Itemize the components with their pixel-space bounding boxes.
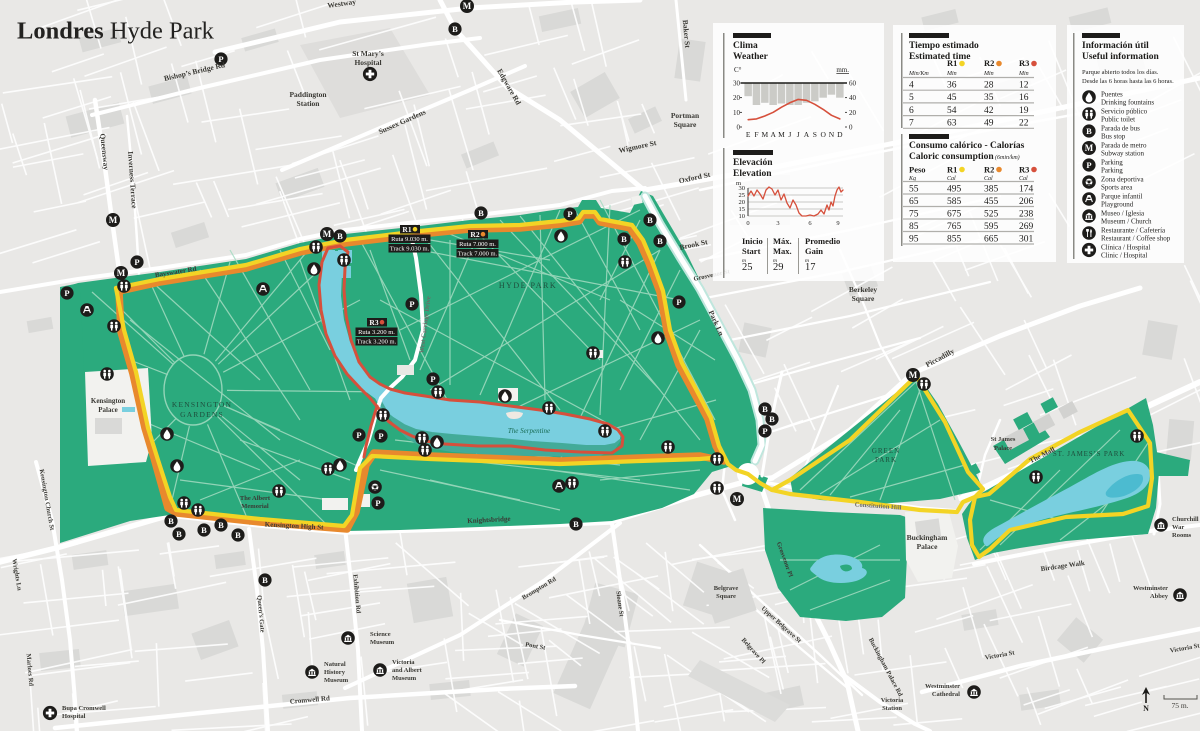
svg-text:Clínica / Hospital: Clínica / Hospital [1101, 244, 1150, 252]
svg-text:Peso: Peso [909, 165, 926, 175]
svg-text:History: History [324, 669, 346, 676]
svg-text:Start: Start [742, 246, 761, 256]
svg-text:63: 63 [947, 119, 957, 129]
svg-text:N: N [1143, 704, 1149, 713]
svg-text:Promedio: Promedio [805, 236, 840, 246]
svg-text:595: 595 [984, 222, 999, 232]
svg-text:269: 269 [1019, 222, 1034, 232]
svg-text:R3: R3 [369, 318, 378, 327]
svg-text:Natural: Natural [324, 661, 346, 668]
svg-text:Track 7.000 m.: Track 7.000 m. [458, 251, 498, 258]
svg-text:Station: Station [882, 705, 902, 712]
svg-text:F: F [754, 130, 758, 139]
svg-text:Parque abierto todos los días.: Parque abierto todos los días. [1082, 69, 1159, 76]
svg-text:65: 65 [909, 197, 919, 207]
svg-text:R2: R2 [470, 230, 479, 239]
svg-text:17: 17 [805, 262, 816, 273]
svg-text:Min: Min [1018, 71, 1029, 77]
svg-text:Hospital: Hospital [354, 58, 381, 67]
svg-text:Berkeley: Berkeley [849, 285, 878, 294]
svg-text:Belgrave: Belgrave [714, 585, 739, 592]
svg-text:25: 25 [742, 262, 753, 273]
svg-text:36: 36 [947, 81, 957, 91]
svg-text:Clinic / Hospital: Clinic / Hospital [1101, 252, 1147, 260]
svg-text:C°: C° [734, 66, 742, 74]
svg-text:22: 22 [1019, 119, 1029, 129]
svg-text:Victoria: Victoria [881, 697, 904, 704]
svg-text:Tiempo estimado: Tiempo estimado [909, 41, 979, 51]
svg-text:10: 10 [733, 109, 741, 117]
svg-text:Westminster: Westminster [925, 683, 960, 690]
svg-text:R3: R3 [1019, 58, 1029, 68]
svg-text:Bupa Cromwell: Bupa Cromwell [62, 705, 106, 712]
svg-text:0: 0 [849, 124, 853, 132]
svg-text:A: A [770, 130, 776, 139]
svg-text:525: 525 [984, 210, 999, 220]
svg-text:Ruta 3.200 m.: Ruta 3.200 m. [358, 329, 395, 336]
svg-text:3: 3 [776, 220, 779, 227]
svg-text:Puentes: Puentes [1101, 91, 1123, 99]
svg-text:Caloric consumption: Caloric consumption [909, 152, 994, 162]
svg-text:9: 9 [836, 220, 839, 227]
svg-text:12: 12 [1019, 81, 1029, 91]
svg-text:Londres Hyde Park: Londres Hyde Park [17, 18, 215, 45]
svg-text:Rooms: Rooms [1172, 532, 1192, 539]
svg-text:The Serpentine: The Serpentine [508, 427, 550, 435]
svg-text:6: 6 [909, 106, 914, 116]
svg-text:40: 40 [849, 94, 857, 102]
svg-text:N: N [829, 130, 835, 139]
svg-text:E: E [746, 130, 751, 139]
svg-text:25: 25 [739, 192, 746, 199]
svg-text:16: 16 [1019, 93, 1029, 103]
svg-text:Victoria: Victoria [392, 659, 415, 666]
svg-text:Square: Square [716, 593, 736, 600]
svg-text:35: 35 [984, 93, 994, 103]
svg-text:GARDENS: GARDENS [180, 410, 224, 419]
svg-text:Kensington: Kensington [91, 397, 125, 405]
svg-text:Useful information: Useful information [1082, 52, 1160, 62]
svg-text:Square: Square [852, 294, 875, 303]
svg-text:GREEN: GREEN [872, 447, 900, 455]
svg-text:765: 765 [947, 222, 962, 232]
svg-text:Parking: Parking [1101, 159, 1123, 167]
svg-text:J: J [788, 130, 791, 139]
svg-text:Track 9.030 m.: Track 9.030 m. [390, 246, 430, 253]
svg-text:Máx.: Máx. [773, 236, 792, 246]
svg-text:60: 60 [849, 80, 857, 88]
svg-text:The Albert: The Albert [240, 495, 271, 502]
svg-text:5: 5 [909, 93, 914, 103]
svg-text:and Albert: and Albert [392, 667, 423, 674]
svg-text:Abbey: Abbey [1150, 593, 1169, 600]
svg-text:Portman: Portman [671, 111, 700, 120]
svg-text:Estimated time: Estimated time [909, 52, 970, 62]
svg-text:Restaurante / Cafetería: Restaurante / Cafetería [1101, 227, 1166, 235]
svg-text:St James: St James [991, 436, 1016, 443]
svg-text:30: 30 [739, 185, 746, 192]
svg-text:Clima: Clima [733, 41, 758, 51]
svg-text:HYDE PARK: HYDE PARK [499, 281, 557, 290]
svg-text:R2: R2 [984, 165, 994, 175]
svg-text:Parque infantil: Parque infantil [1101, 193, 1142, 201]
svg-text:Restaurant / Coffee shop: Restaurant / Coffee shop [1101, 235, 1171, 243]
svg-text:206: 206 [1019, 197, 1034, 207]
svg-text:War: War [1172, 524, 1184, 531]
svg-text:Palace: Palace [917, 542, 938, 551]
svg-text:15: 15 [739, 206, 746, 213]
svg-text:Parada de metro: Parada de metro [1101, 142, 1147, 150]
svg-text:M: M [761, 130, 768, 139]
svg-text:95: 95 [909, 235, 919, 245]
svg-text:385: 385 [984, 185, 999, 195]
svg-text:Square: Square [674, 120, 697, 129]
svg-text:45: 45 [947, 93, 957, 103]
svg-text:Min/Km: Min/Km [908, 71, 929, 77]
svg-text:0: 0 [746, 220, 749, 227]
svg-text:Weather: Weather [733, 52, 769, 62]
svg-text:D: D [837, 130, 843, 139]
svg-text:Public toilet: Public toilet [1101, 116, 1135, 124]
svg-text:665: 665 [984, 235, 999, 245]
svg-text:R2: R2 [984, 58, 994, 68]
svg-text:42: 42 [984, 106, 994, 116]
svg-text:R1: R1 [947, 58, 957, 68]
svg-text:R3: R3 [1019, 165, 1029, 175]
svg-text:19: 19 [1019, 106, 1029, 116]
svg-text:(6min/km): (6min/km) [995, 154, 1020, 161]
svg-text:Min: Min [946, 71, 957, 77]
svg-text:Zona deportiva: Zona deportiva [1101, 176, 1144, 184]
svg-text:49: 49 [984, 119, 994, 129]
svg-text:675: 675 [947, 210, 962, 220]
svg-text:Ruta 7.000 m.: Ruta 7.000 m. [459, 241, 496, 248]
svg-text:30: 30 [733, 80, 741, 88]
svg-text:Paddington: Paddington [289, 90, 327, 99]
svg-text:mm.: mm. [836, 66, 849, 74]
svg-text:Station: Station [297, 99, 321, 108]
svg-text:KENSINGTON: KENSINGTON [172, 400, 232, 409]
svg-text:Sports area: Sports area [1101, 184, 1133, 192]
svg-text:Museum: Museum [324, 677, 349, 684]
svg-text:174: 174 [1019, 185, 1034, 195]
svg-text:Palace: Palace [98, 406, 117, 414]
svg-text:Memorial: Memorial [241, 503, 269, 510]
svg-text:S: S [813, 130, 817, 139]
svg-text:Museo / Iglesia: Museo / Iglesia [1101, 210, 1145, 218]
svg-text:PARK: PARK [875, 456, 897, 464]
svg-text:Palace: Palace [994, 445, 1012, 452]
svg-text:Museum: Museum [370, 639, 395, 646]
svg-text:Bus stop: Bus stop [1101, 133, 1126, 141]
svg-text:R1: R1 [947, 165, 957, 175]
svg-text:20: 20 [849, 109, 857, 117]
svg-text:Buckingham: Buckingham [907, 533, 949, 542]
svg-text:585: 585 [947, 197, 962, 207]
svg-text:Hospital: Hospital [62, 713, 86, 720]
svg-text:495: 495 [947, 185, 962, 195]
svg-text:20: 20 [733, 94, 741, 102]
svg-text:238: 238 [1019, 210, 1034, 220]
svg-text:Elevación: Elevación [733, 158, 773, 168]
svg-text:10: 10 [739, 213, 746, 220]
svg-text:4: 4 [909, 81, 914, 91]
svg-text:55: 55 [909, 185, 919, 195]
svg-text:Subway station: Subway station [1101, 150, 1144, 158]
svg-text:Ruta 9.030 m.: Ruta 9.030 m. [391, 236, 428, 243]
svg-text:Museum / Church: Museum / Church [1101, 218, 1152, 226]
svg-text:0: 0 [737, 124, 741, 132]
svg-text:855: 855 [947, 235, 962, 245]
svg-text:A: A [804, 130, 810, 139]
svg-text:Información útil: Información útil [1082, 41, 1149, 51]
svg-text:54: 54 [947, 106, 957, 116]
svg-text:ST. JAMES’S PARK: ST. JAMES’S PARK [1053, 450, 1125, 458]
svg-text:Consumo calórico - Calorías: Consumo calórico - Calorías [909, 141, 1025, 151]
svg-text:Westminster: Westminster [1133, 585, 1168, 592]
svg-text:28: 28 [984, 81, 994, 91]
svg-text:Elevation: Elevation [733, 169, 772, 179]
svg-text:7: 7 [909, 119, 914, 129]
svg-text:20: 20 [739, 199, 746, 206]
svg-text:301: 301 [1019, 235, 1034, 245]
svg-text:Desde las 6 horas hasta las 6: Desde las 6 horas hasta las 6 horas. [1082, 78, 1174, 85]
svg-text:Science: Science [370, 631, 391, 638]
svg-text:J: J [797, 130, 800, 139]
svg-text:Servicio público: Servicio público [1101, 108, 1148, 116]
svg-text:O: O [820, 130, 826, 139]
svg-text:Parada de bus: Parada de bus [1101, 125, 1140, 133]
svg-text:85: 85 [909, 222, 919, 232]
svg-text:Inicio: Inicio [742, 236, 763, 246]
svg-text:Drinking fountains: Drinking fountains [1101, 99, 1154, 107]
svg-text:Museum: Museum [392, 675, 417, 682]
svg-text:Parking: Parking [1101, 167, 1123, 175]
svg-text:Cathedral: Cathedral [932, 691, 960, 698]
svg-text:Gain: Gain [805, 246, 823, 256]
svg-text:455: 455 [984, 197, 999, 207]
svg-text:Churchill: Churchill [1172, 516, 1199, 523]
svg-text:St Mary’s: St Mary’s [352, 49, 384, 58]
svg-text:Track 3.200 m.: Track 3.200 m. [357, 339, 397, 346]
svg-text:Min: Min [983, 71, 994, 77]
svg-text:Playground: Playground [1101, 201, 1134, 209]
svg-text:75: 75 [909, 210, 919, 220]
svg-text:29: 29 [773, 262, 784, 273]
svg-text:Max.: Max. [773, 246, 792, 256]
svg-text:M: M [778, 130, 785, 139]
svg-text:R1: R1 [402, 225, 411, 234]
svg-text:75 m.: 75 m. [1171, 701, 1188, 710]
